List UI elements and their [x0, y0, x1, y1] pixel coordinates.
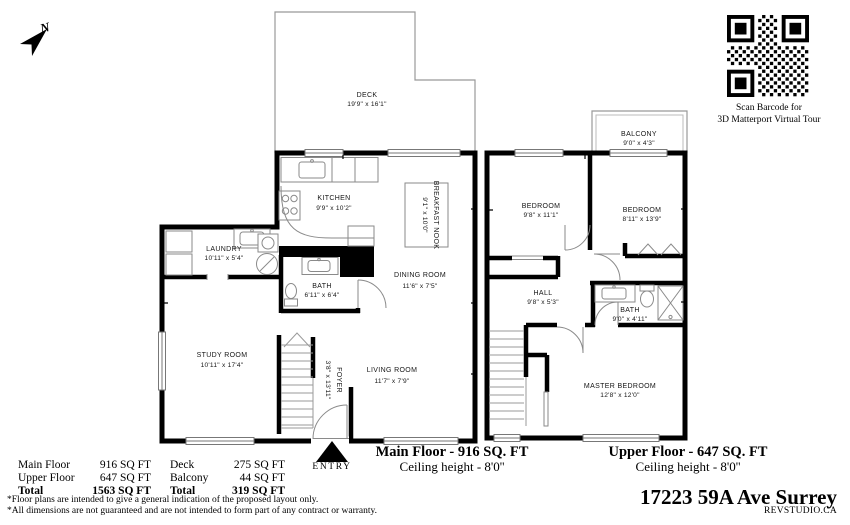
room-label-bath: BATH [312, 283, 332, 290]
floorplan-page: N [0, 0, 850, 525]
room-dims-bath: 6'11" x 6'4" [304, 292, 339, 299]
area-table: Main Floor 916 SQ FT Upper Floor 647 SQ … [18, 459, 285, 498]
deck-outline [275, 12, 475, 153]
area-label: Deck [170, 459, 194, 472]
room-dims-laundry: 10'11" x 5'4" [205, 255, 244, 262]
area-table-right-column: Deck 275 SQ FT Balcony 44 SQ FT Total 31… [170, 459, 285, 498]
main-stairs [281, 333, 313, 428]
room-dims-bedroom-right: 8'11" x 13'9" [623, 216, 662, 223]
room-dims-study: 10'11" x 17'4" [201, 362, 244, 369]
room-label-dining: DINING ROOM [394, 272, 446, 279]
room-dims-living: 11'7" x 7'9" [374, 378, 409, 385]
upper-bath-fixtures [595, 285, 683, 320]
qr-code-icon [727, 15, 809, 97]
table-row: Balcony 44 SQ FT [170, 472, 285, 485]
room-label-upper-bath: BATH [620, 307, 640, 314]
room-dims-hall: 9'8" x 5'3" [527, 299, 559, 306]
upper-wall-ticks [489, 155, 685, 302]
area-label: Main Floor [18, 459, 70, 472]
entry-label: ENTRY [300, 462, 364, 472]
area-label: Balcony [170, 472, 208, 485]
room-dims-upper-bath: 9'0" x 4'11" [612, 316, 647, 323]
room-label-hall: HALL [534, 290, 553, 297]
upper-interior-walls [487, 153, 685, 392]
room-label-living: LIVING ROOM [367, 367, 418, 374]
room-label-kitchen: KITCHEN [317, 195, 350, 202]
room-label-laundry: LAUNDRY [206, 246, 242, 253]
area-value: 647 SQ FT [100, 472, 151, 485]
main-floor-ceiling: Ceiling height - 8'0'' [352, 459, 552, 475]
upper-closets [512, 244, 681, 426]
table-row: Deck 275 SQ FT [170, 459, 285, 472]
kitchen-counter-block [279, 246, 374, 257]
qr-caption-line1: Scan Barcode for [696, 103, 842, 115]
qr-caption-line2: 3D Matterport Virtual Tour [696, 115, 842, 127]
room-dims-balcony: 9'0" x 4'3" [623, 140, 655, 147]
room-label-balcony: BALCONY [621, 131, 657, 138]
room-label-foyer: FOYER [335, 367, 342, 393]
disclaimer-line: *Floor plans are intended to give a gene… [7, 495, 377, 506]
table-row: Main Floor 916 SQ FT [18, 459, 151, 472]
north-arrow-icon: N [20, 19, 52, 56]
room-label-bedroom-right: BEDROOM [623, 207, 662, 214]
upper-floor-plan: BALCONY 9'0" x 4'3" BEDROOM 9'8" x 11'1"… [487, 111, 687, 442]
room-label-breakfast-nook: BREAKFAST NOOK [432, 181, 439, 250]
kitchen-counter-block2 [340, 257, 374, 277]
room-dims-breakfast-nook: 9'1" x 10'0" [421, 197, 428, 233]
upper-stairs [489, 331, 526, 426]
room-label-bedroom-left: BEDROOM [522, 203, 561, 210]
room-dims-dining: 11'6" x 7'5" [402, 283, 437, 290]
area-label: Upper Floor [18, 472, 75, 485]
upper-floor-ceiling: Ceiling height - 8'0'' [588, 459, 788, 475]
room-label-deck: DECK [357, 92, 378, 99]
room-label-master: MASTER BEDROOM [584, 383, 656, 390]
brand-url: REVSTUDIO.CA [764, 506, 837, 516]
room-dims-master: 12'8" x 12'0" [600, 392, 640, 399]
area-table-left-column: Main Floor 916 SQ FT Upper Floor 647 SQ … [18, 459, 151, 498]
room-dims-kitchen: 9'9" x 10'2" [316, 205, 352, 212]
main-floor-plan: DECK 19'9" x 16'1" KITCHEN 9'9" x 10'2" … [159, 12, 476, 446]
room-label-study: STUDY ROOM [197, 352, 248, 359]
area-value: 275 SQ FT [234, 459, 285, 472]
disclaimer-line: *All dimensions are not guaranteed and a… [7, 506, 377, 517]
disclaimers: *Floor plans are intended to give a gene… [7, 495, 377, 517]
entry-door [313, 405, 347, 439]
room-dims-foyer: 3'8" x 13'11" [324, 361, 331, 400]
area-value: 916 SQ FT [100, 459, 151, 472]
table-row: Upper Floor 647 SQ FT [18, 472, 151, 485]
room-dims-deck: 19'9" x 16'1" [347, 101, 387, 108]
area-value: 44 SQ FT [240, 472, 285, 485]
room-dims-bedroom-left: 9'8" x 11'1" [523, 212, 558, 219]
